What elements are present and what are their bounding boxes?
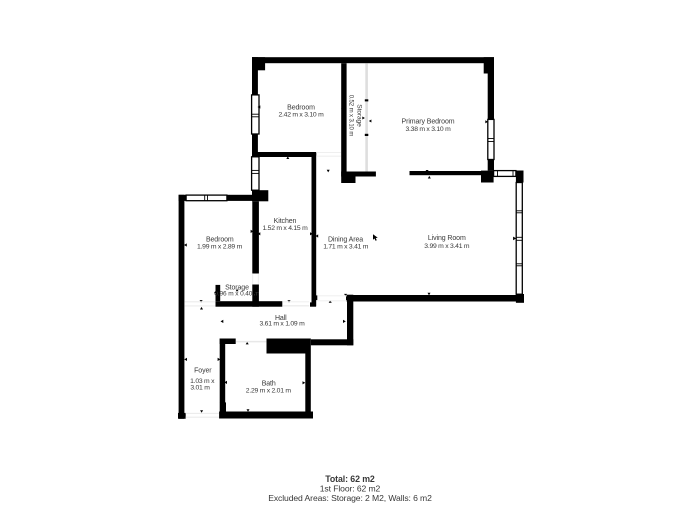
svg-text:Bedroom: Bedroom xyxy=(287,105,315,112)
svg-text:0.52 m x 3.10 m: 0.52 m x 3.10 m xyxy=(347,95,353,137)
svg-text:Bath: Bath xyxy=(262,380,276,387)
svg-text:Foyer: Foyer xyxy=(194,367,212,374)
svg-text:Total: 62 m2: Total: 62 m2 xyxy=(325,474,375,484)
svg-text:Living Room: Living Room xyxy=(428,235,466,242)
svg-text:3.99 m x 3.41 m: 3.99 m x 3.41 m xyxy=(424,243,470,250)
svg-text:3.38 m x 3.10 m: 3.38 m x 3.10 m xyxy=(406,126,452,133)
svg-text:1.99 m x 2.89 m: 1.99 m x 2.89 m xyxy=(197,243,243,250)
svg-text:1.52 m x 4.15 m: 1.52 m x 4.15 m xyxy=(263,225,309,232)
svg-text:1st Floor: 62 m2: 1st Floor: 62 m2 xyxy=(320,484,381,494)
svg-text:Storage: Storage xyxy=(356,104,363,127)
svg-text:2.29 m x 2.01 m: 2.29 m x 2.01 m xyxy=(246,388,292,395)
svg-text:Dining Area: Dining Area xyxy=(328,236,363,243)
svg-text:Kitchen: Kitchen xyxy=(274,218,297,225)
svg-text:3.61 m x 1.09 m: 3.61 m x 1.09 m xyxy=(260,321,306,328)
svg-text:Primary Bedroom: Primary Bedroom xyxy=(402,118,455,125)
svg-text:0.96 m x 0.40 m: 0.96 m x 0.40 m xyxy=(214,290,259,297)
svg-text:Excluded Areas: Storage: 2 M2,: Excluded Areas: Storage: 2 M2, Walls: 6 … xyxy=(268,493,432,503)
svg-text:1.71 m x 3.41 m: 1.71 m x 3.41 m xyxy=(323,243,369,250)
svg-text:3.01 m: 3.01 m xyxy=(190,385,210,392)
svg-text:2.42 m x 3.10 m: 2.42 m x 3.10 m xyxy=(279,112,325,119)
